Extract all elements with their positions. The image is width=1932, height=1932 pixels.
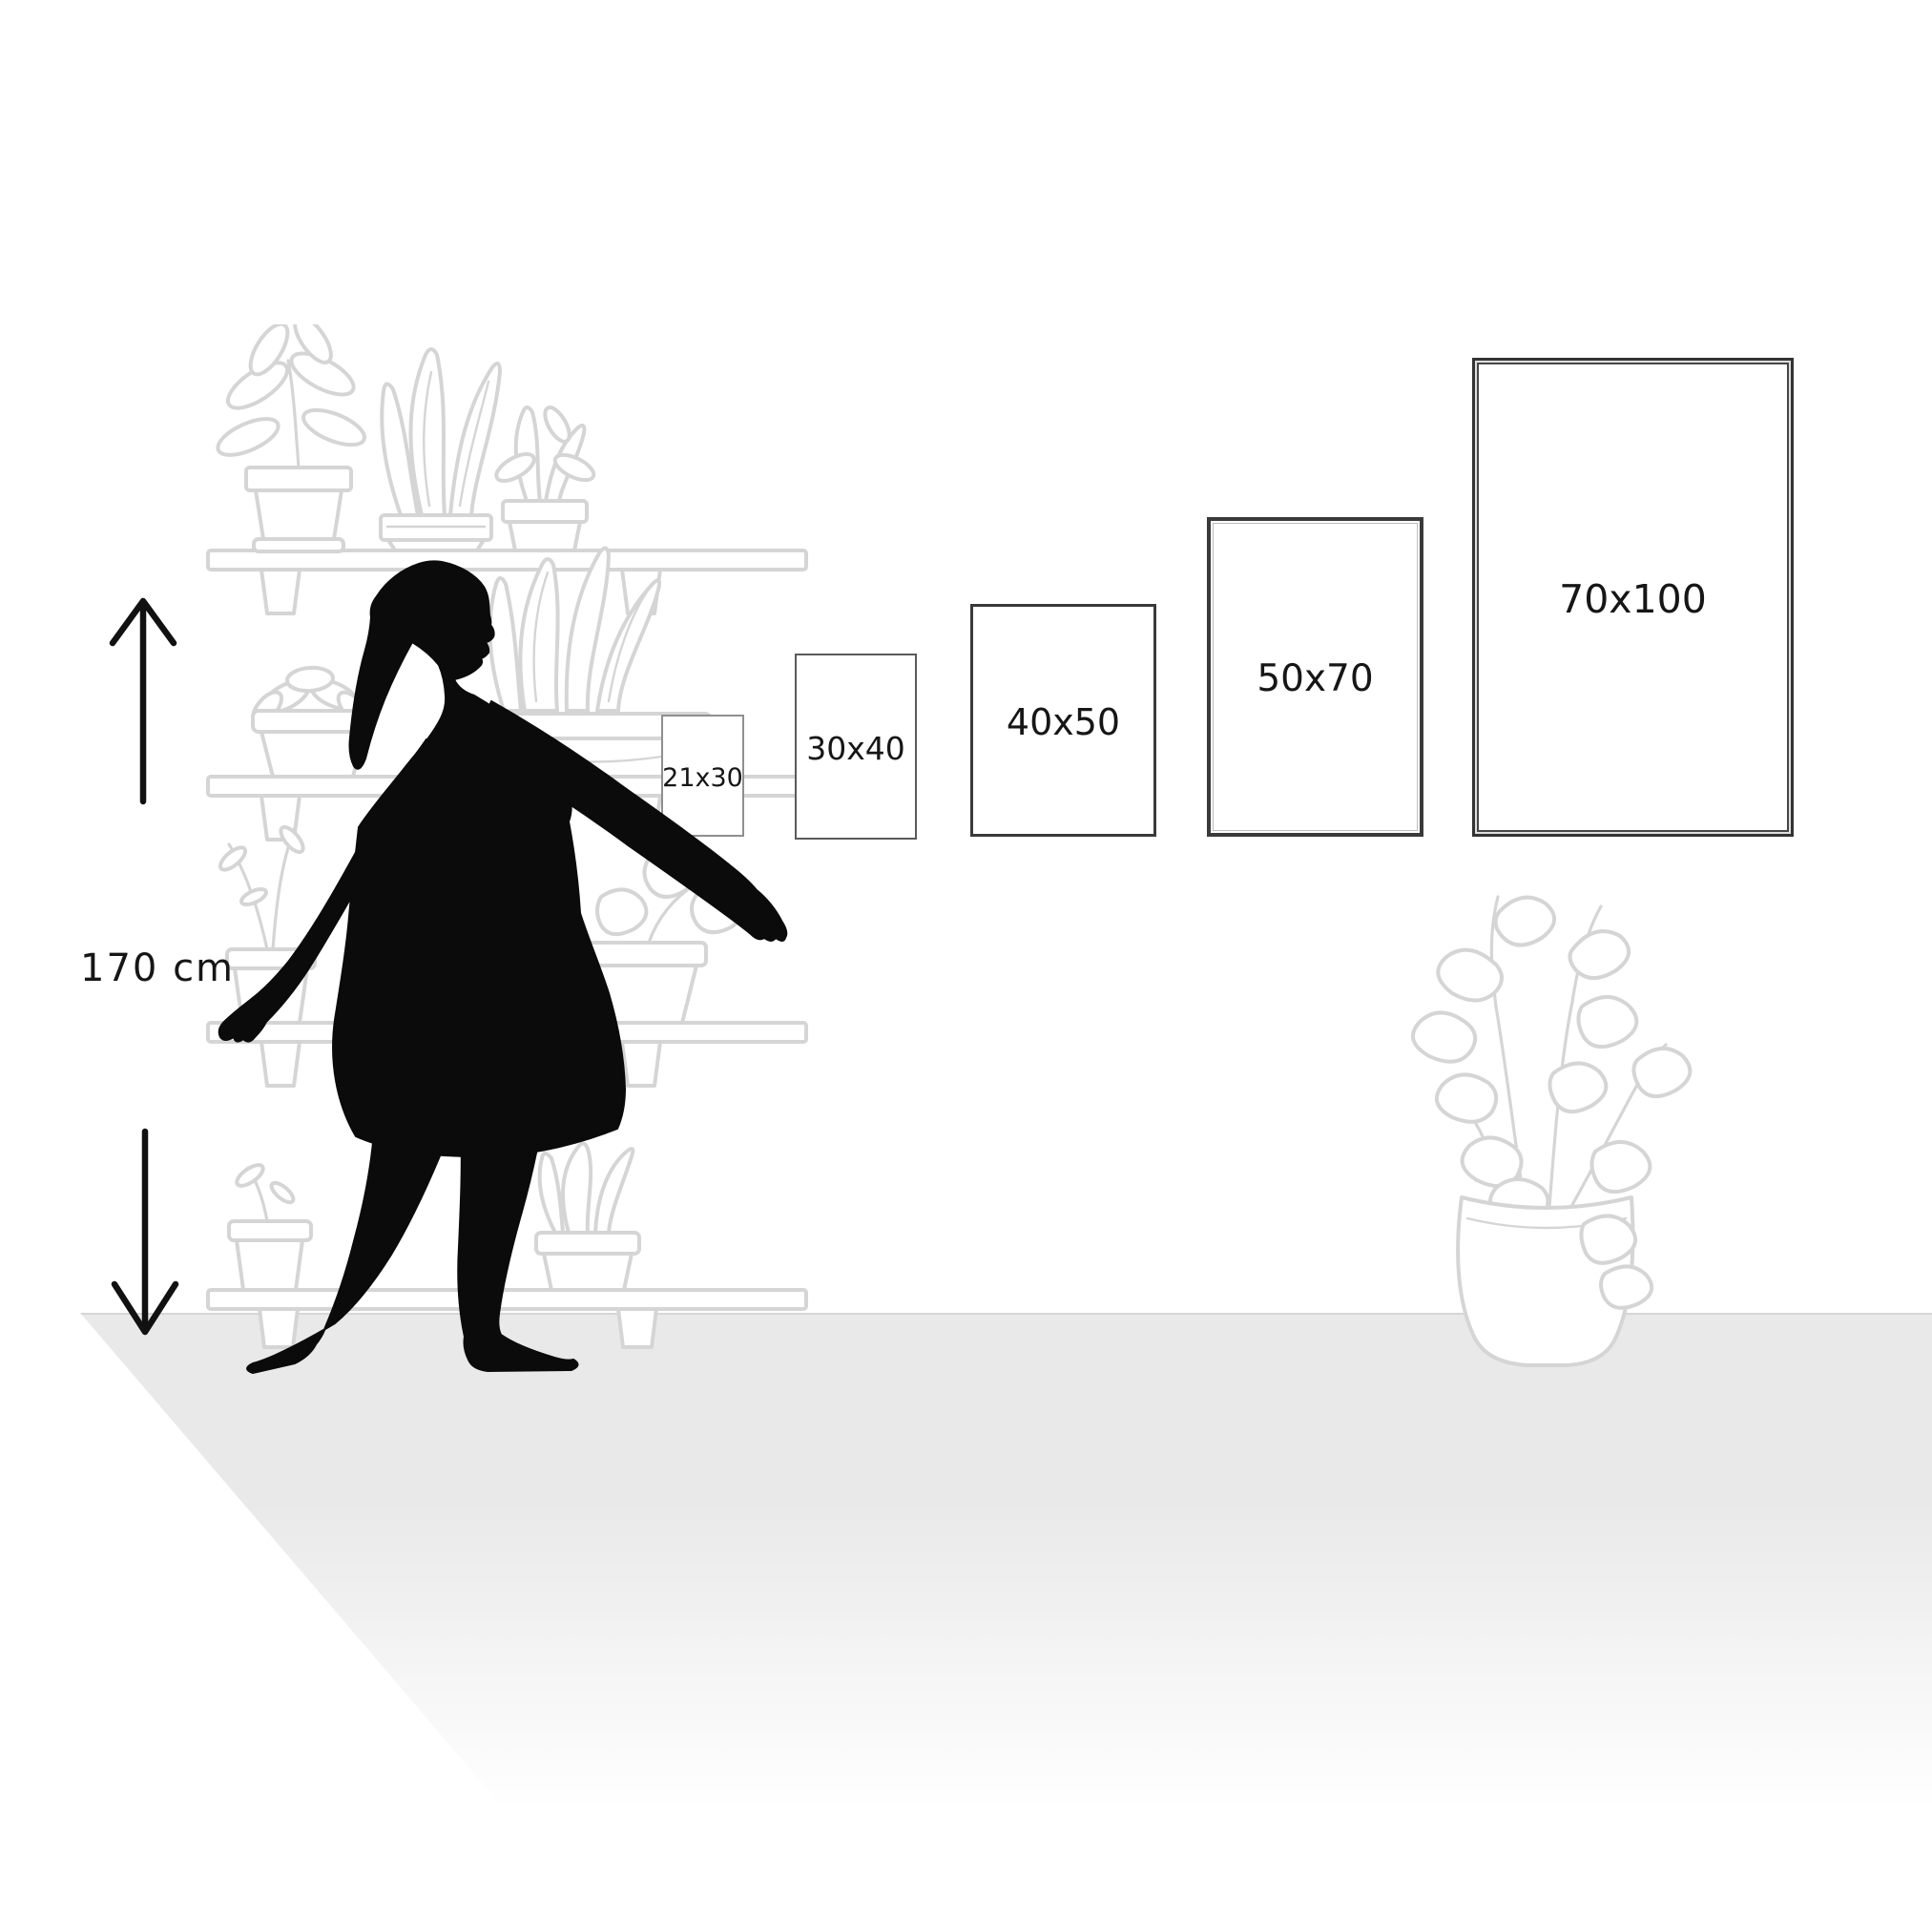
arrow-down-icon xyxy=(105,1124,185,1345)
height-label: 170 cm xyxy=(80,946,235,990)
poster-size-label: 70x100 xyxy=(1559,576,1707,622)
poster-frame-70x100: 70x100 xyxy=(1472,358,1794,837)
walking-woman-silhouette xyxy=(215,558,797,1379)
poster-size-label: 30x40 xyxy=(806,730,905,767)
poster-frame-30x40: 30x40 xyxy=(795,654,917,840)
plant-pot xyxy=(1458,1197,1652,1365)
poster-frame-40x50: 40x50 xyxy=(970,604,1156,837)
poster-size-label: 50x70 xyxy=(1257,657,1373,700)
arrow-up-icon xyxy=(103,590,183,815)
poster-size-comparison-diagram: 170 cm 21x30 30x40 40x50 50x70 70x100 xyxy=(0,0,1932,1932)
potted-plant-line-art xyxy=(1355,873,1717,1374)
silhouette-body xyxy=(333,561,625,1156)
poster-frame-50x70: 50x70 xyxy=(1207,517,1423,837)
floor-shadow xyxy=(80,1313,1932,1811)
shelf-top-plants xyxy=(213,324,597,551)
poster-size-label: 40x50 xyxy=(1007,701,1120,743)
